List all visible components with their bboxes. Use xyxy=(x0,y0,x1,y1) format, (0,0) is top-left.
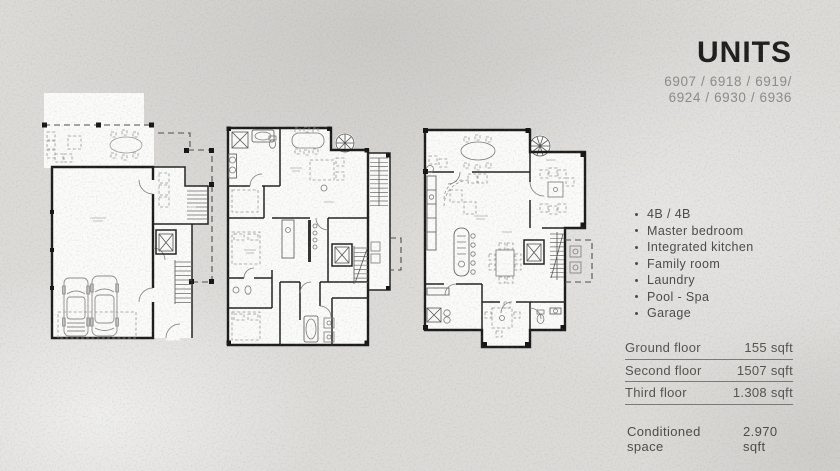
table-row: Ground floor 155 sqft xyxy=(625,337,793,360)
bullet-dot-icon xyxy=(635,229,638,232)
feature-label: Master bedroom xyxy=(647,224,744,238)
floor-area-table: Ground floor 155 sqft Second floor 1507 … xyxy=(625,337,793,405)
bullet-dot-icon xyxy=(635,312,638,315)
feature-item: Integrated kitchen xyxy=(635,239,754,256)
feature-item: Garage xyxy=(635,305,754,322)
features-list: 4B / 4B Master bedroom Integrated kitche… xyxy=(635,206,754,322)
floor-label: Ground floor xyxy=(625,340,701,355)
unit-numbers-line1: 6907 / 6918 / 6919/ xyxy=(664,74,792,90)
feature-label: 4B / 4B xyxy=(647,207,691,221)
summary-value: 2.970 sqft xyxy=(743,424,800,454)
ground-floor-plan xyxy=(38,90,220,352)
units-title: UNITS xyxy=(697,36,792,70)
unit-numbers-line2: 6924 / 6930 / 6936 xyxy=(664,90,792,106)
feature-item: Family room xyxy=(635,256,754,273)
info-panel: UNITS 6907 / 6918 / 6919/ 6924 / 6930 / … xyxy=(620,0,800,471)
feature-item: Laundry xyxy=(635,272,754,289)
feature-label: Laundry xyxy=(647,273,695,287)
plan-paper xyxy=(44,93,208,338)
floor-area-value: 155 sqft xyxy=(744,340,793,355)
feature-label: Family room xyxy=(647,257,720,271)
summary-label: Conditioned space xyxy=(627,424,734,454)
bullet-dot-icon xyxy=(635,213,638,216)
third-floor-plan xyxy=(416,112,602,360)
bullet-dot-icon xyxy=(635,262,638,265)
conditioned-space-summary: Conditioned space 2.970 sqft xyxy=(627,424,800,454)
feature-label: Garage xyxy=(647,306,691,320)
unit-numbers: 6907 / 6918 / 6919/ 6924 / 6930 / 6936 xyxy=(664,74,792,106)
feature-label: Pool - Spa xyxy=(647,290,709,304)
feature-item: Pool - Spa xyxy=(635,289,754,306)
feature-label: Integrated kitchen xyxy=(647,240,754,254)
feature-item: 4B / 4B xyxy=(635,206,754,223)
second-floor-plan xyxy=(224,120,406,352)
floor-area-value: 1.308 sqft xyxy=(733,385,793,400)
floor-label: Second floor xyxy=(625,363,702,378)
floorplan-brochure-page: UNITS 6907 / 6918 / 6919/ 6924 / 6930 / … xyxy=(0,0,840,471)
bullet-dot-icon xyxy=(635,279,638,282)
feature-item: Master bedroom xyxy=(635,223,754,240)
table-row: Second floor 1507 sqft xyxy=(625,360,793,383)
floor-label: Third floor xyxy=(625,385,687,400)
bullet-dot-icon xyxy=(635,246,638,249)
equipment-units xyxy=(570,246,581,273)
elevator-icon xyxy=(332,244,352,266)
table-row: Third floor 1.308 sqft xyxy=(625,382,793,405)
floor-area-value: 1507 sqft xyxy=(737,363,793,378)
bullet-dot-icon xyxy=(635,295,638,298)
